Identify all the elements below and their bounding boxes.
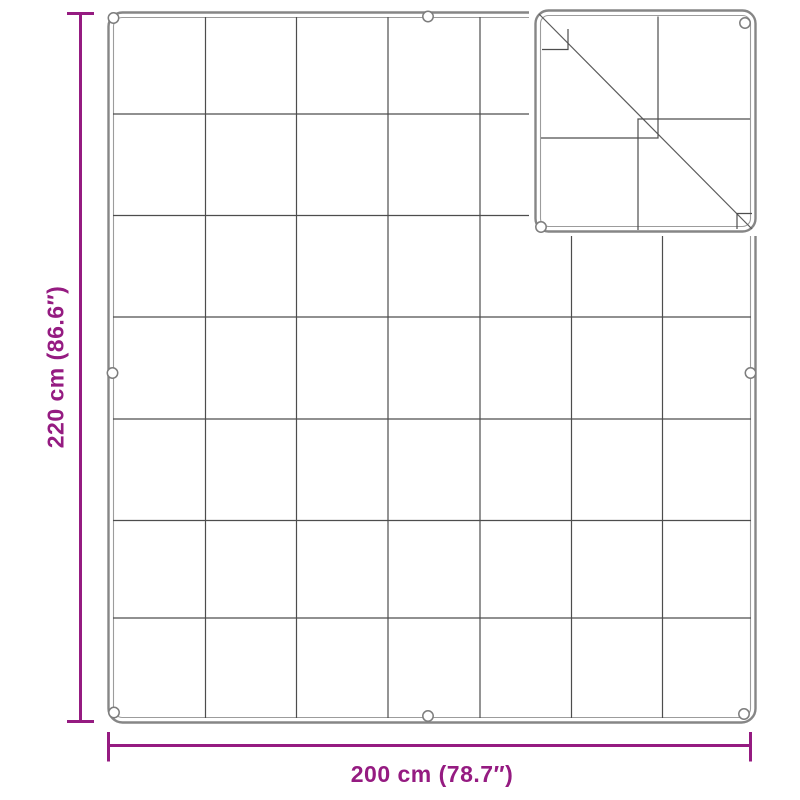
height-dimension-label: 220 cm (86.6″) <box>43 286 70 449</box>
grommet-bottom-left <box>109 707 119 717</box>
grommet-top-left <box>108 13 118 23</box>
grommet-bottom-middle <box>423 711 433 721</box>
width-dimension-label: 200 cm (78.7″) <box>108 761 756 788</box>
grommet-fold-bottom-left <box>536 222 546 232</box>
grommet-fold-top-right <box>740 18 750 28</box>
folded-corner <box>529 5 761 236</box>
diagram-canvas <box>0 0 800 800</box>
height-dimension-line <box>67 12 94 723</box>
product-dimension-image: 220 cm (86.6″) 200 cm (78.7″) <box>0 0 800 800</box>
grommet-right-middle <box>745 368 755 378</box>
grommet-top-middle <box>423 11 433 21</box>
grommet-left-middle <box>107 368 117 378</box>
grommet-bottom-right <box>739 709 749 719</box>
width-dimension-line <box>108 732 752 762</box>
